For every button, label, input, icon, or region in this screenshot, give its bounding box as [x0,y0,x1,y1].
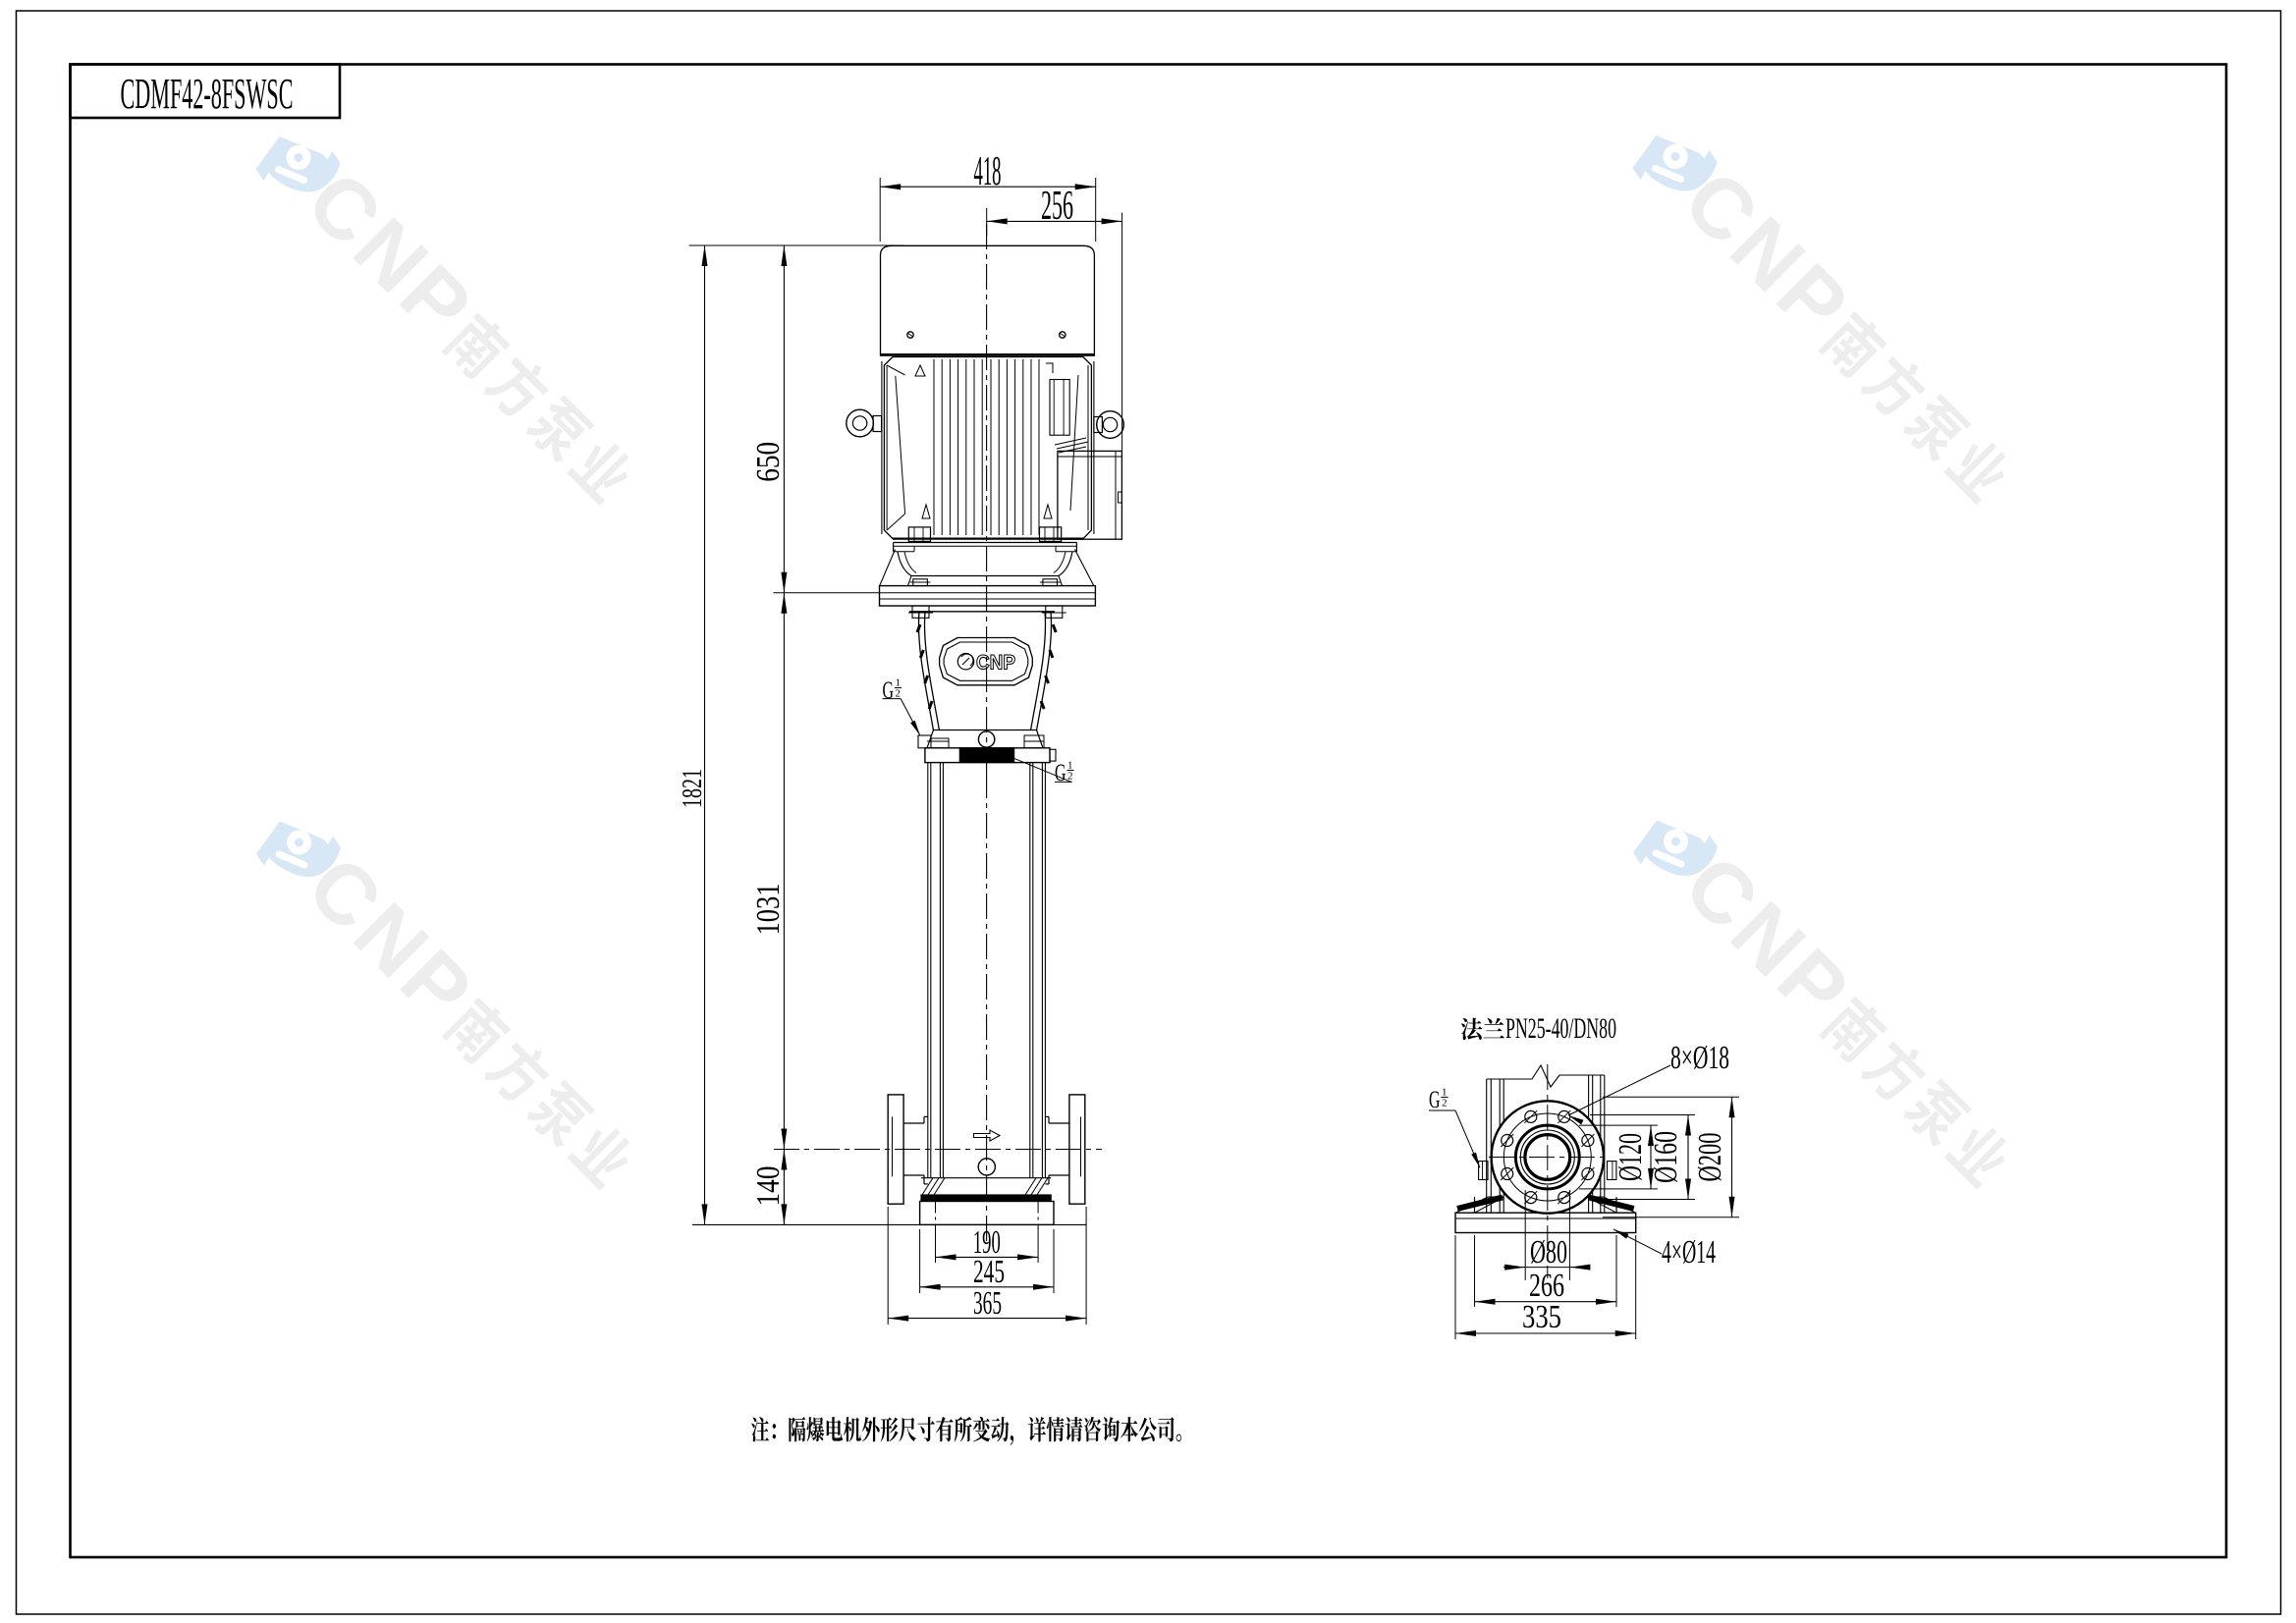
svg-text:Ø120: Ø120 [1613,1133,1649,1181]
svg-text:Ø160: Ø160 [1648,1131,1684,1183]
svg-text:256: 256 [1041,184,1073,229]
svg-text:CNP: CNP [976,652,1015,675]
svg-text:PN25-40/DN80: PN25-40/DN80 [1505,1012,1616,1045]
svg-text:2: 2 [1442,1098,1448,1109]
svg-text:1031: 1031 [750,884,787,936]
svg-text:335: 335 [1522,1299,1561,1335]
svg-text:365: 365 [973,1285,1002,1322]
svg-text:Ø80: Ø80 [1530,1234,1567,1271]
svg-text:G: G [1429,1087,1441,1113]
svg-text:4×Ø14: 4×Ø14 [1662,1234,1716,1271]
svg-text:2: 2 [896,688,902,700]
svg-text:140: 140 [750,1166,787,1207]
svg-text:8×Ø18: 8×Ø18 [1670,1040,1729,1076]
svg-text:G: G [883,677,895,704]
svg-text:Ø200: Ø200 [1692,1133,1728,1182]
svg-text:CDMF42-8FSWSC: CDMF42-8FSWSC [121,70,294,118]
svg-text:418: 418 [974,149,1002,194]
svg-text:G: G [1055,760,1066,786]
svg-text:650: 650 [750,442,787,482]
svg-text:1821: 1821 [677,769,708,808]
